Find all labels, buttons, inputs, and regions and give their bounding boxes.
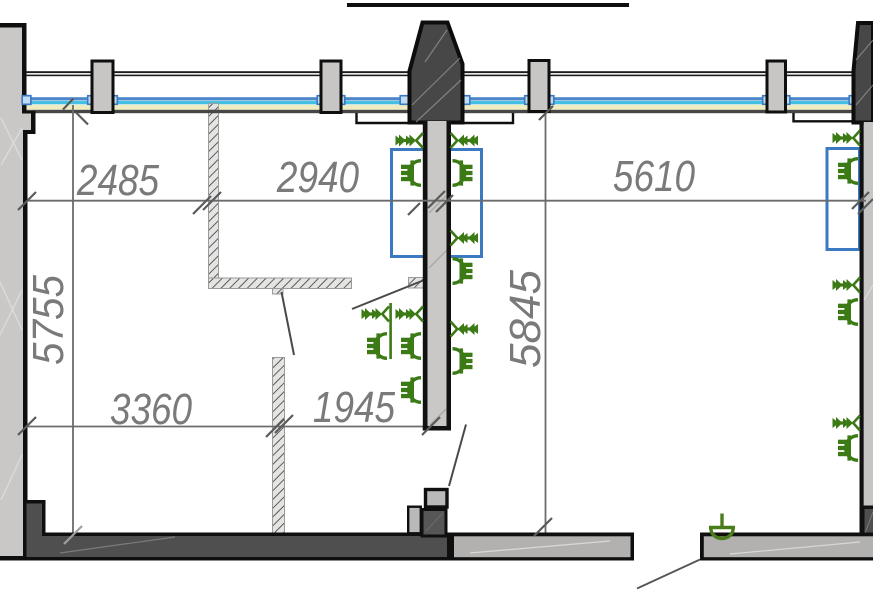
svg-text:3360: 3360 — [110, 384, 193, 434]
svg-text:2485: 2485 — [76, 155, 159, 205]
svg-text:2940: 2940 — [276, 152, 359, 202]
svg-text:5610: 5610 — [613, 151, 696, 201]
svg-text:1945: 1945 — [313, 382, 396, 432]
svg-text:5845: 5845 — [501, 270, 550, 368]
svg-text:5755: 5755 — [23, 275, 72, 366]
